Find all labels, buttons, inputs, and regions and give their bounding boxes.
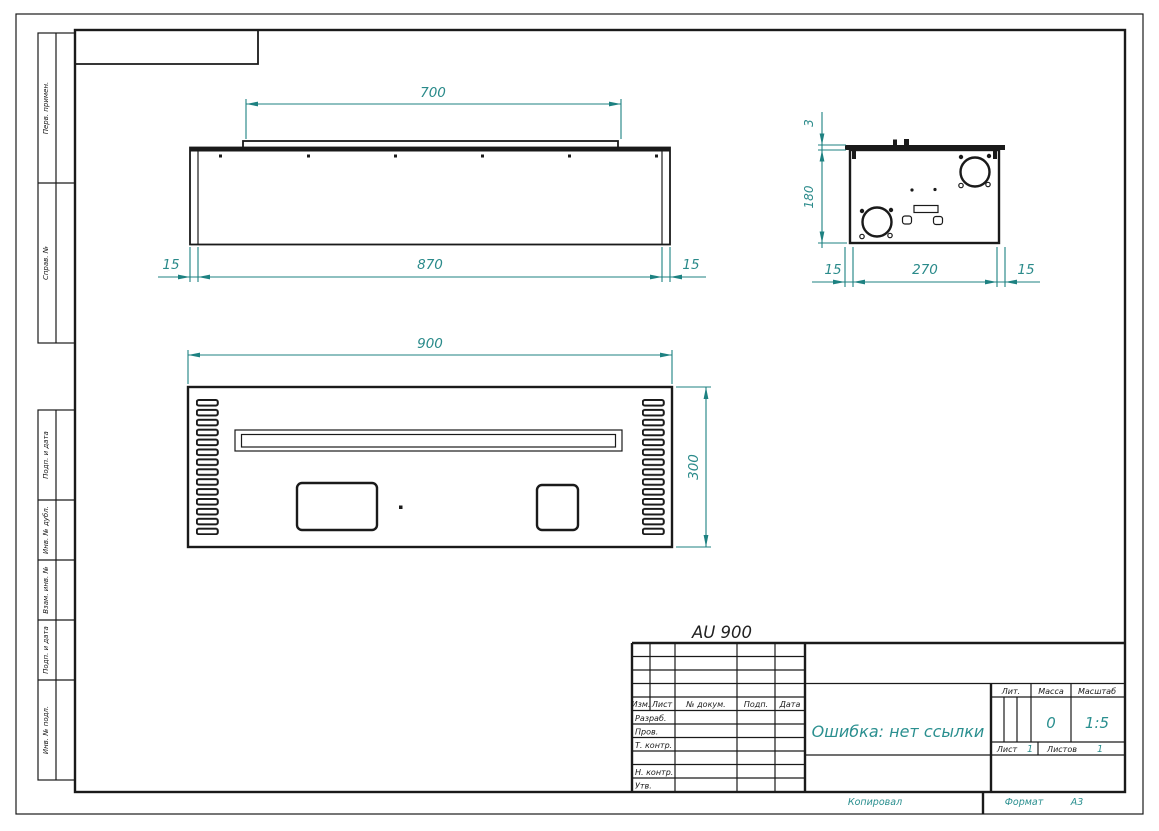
scale-label: Масштаб: [1078, 687, 1116, 696]
sheets-label: Листов: [1046, 745, 1077, 754]
side-body-outline: [850, 150, 999, 243]
arrowhead: [704, 535, 709, 547]
arrowhead: [820, 134, 825, 146]
fan-mount-hole: [959, 183, 963, 187]
dim-text-700: 700: [420, 85, 446, 101]
arrowhead: [660, 353, 672, 358]
drawing-page: Перв. примен. Справ. № Подп. и дата Инв.…: [0, 0, 1159, 831]
fan-mount-hole: [860, 234, 864, 238]
arrowhead: [650, 275, 662, 280]
col-podp: Подп.: [744, 700, 768, 709]
role-nkontr: Н. контр.: [635, 768, 673, 777]
arrowhead: [704, 387, 709, 399]
side-view: 3 180 15 270 15: [802, 112, 1040, 287]
arrowhead: [820, 232, 825, 244]
arrowhead: [246, 102, 258, 107]
fan-mount-hole: [986, 182, 990, 186]
format-value: А3: [1070, 797, 1084, 808]
dim-text-300: 300: [686, 454, 702, 480]
margin-label-inv-podl: Инв. № подл.: [42, 706, 50, 754]
screw-holes: [219, 155, 658, 158]
sheet-value: 1: [1027, 744, 1033, 755]
dimension-270: 15 270 15: [812, 247, 1040, 287]
margin-label-podp-data-2: Подп. и дата: [42, 626, 50, 674]
panel-outline: [188, 387, 672, 547]
mount-tab: [904, 139, 909, 145]
front-elevation-view: 700 15 870 15: [158, 85, 706, 282]
fan-mount-hole: [860, 209, 864, 213]
arrowhead: [820, 150, 825, 162]
dim-text-870: 870: [417, 257, 443, 273]
dimension-870: 15 870 15: [158, 247, 706, 282]
screw-hole: [568, 155, 571, 158]
title-block: Изм. Лист № докум. Подп. Дата Разраб. Пр…: [632, 643, 1125, 792]
center-hole: [399, 506, 403, 510]
col-izm: Изм.: [632, 700, 651, 709]
margin-label-perv-primen: Перв. примен.: [42, 82, 50, 135]
arrowhead: [985, 280, 997, 285]
document-name: Ошибка: нет ссылки: [812, 722, 985, 741]
arrowhead: [853, 280, 865, 285]
role-razrab: Разраб.: [635, 714, 666, 723]
format-label: Формат: [1005, 797, 1044, 808]
corner-notch: [993, 150, 997, 159]
arrowhead: [670, 275, 682, 280]
screw-hole: [655, 155, 658, 158]
margin-column: Перв. примен. Справ. № Подп. и дата Инв.…: [38, 33, 75, 780]
margin-label-inv-dubl: Инв. № дубл.: [42, 506, 50, 554]
footer-strip: Копировал Формат А3: [848, 792, 1083, 814]
dim-text-15-right: 15: [1017, 262, 1034, 278]
mass-value: 0: [1046, 714, 1056, 732]
copied-label: Копировал: [848, 797, 902, 808]
dim-text-270: 270: [912, 262, 938, 278]
fan-cutout-bottom: [863, 208, 892, 237]
corner-notch: [852, 150, 856, 159]
small-hole: [910, 188, 913, 191]
margin-label-podp-data-1: Подп. и дата: [42, 431, 50, 479]
drawing-canvas: Перв. примен. Справ. № Подп. и дата Инв.…: [0, 0, 1159, 831]
col-docnum: № докум.: [685, 700, 725, 709]
burner-slot-inner: [242, 435, 616, 448]
role-tkontr: Т. контр.: [635, 741, 672, 750]
mass-label: Масса: [1038, 687, 1064, 696]
fan-cutout-top: [961, 158, 990, 187]
outer-border: [16, 14, 1143, 814]
fan-mount-hole: [959, 155, 963, 159]
scale-value: 1:5: [1085, 714, 1109, 732]
screw-hole: [219, 155, 222, 158]
small-hole: [933, 188, 936, 191]
drawing-title: AU 900: [691, 623, 752, 642]
arrowhead: [609, 102, 621, 107]
mount-tab: [893, 140, 897, 146]
dimension-900: 900: [188, 336, 672, 384]
margin-label-vzam-inv: Взам. инв. №: [42, 566, 50, 614]
main-frame: [75, 30, 1125, 792]
arrowhead: [188, 353, 200, 358]
panel-view: 900 300: [188, 336, 711, 547]
connector-slot: [914, 206, 938, 213]
sheet-frame: [16, 14, 1143, 814]
dim-text-15-left: 15: [824, 262, 841, 278]
cutout-left: [297, 483, 377, 530]
cable-hole: [934, 217, 943, 225]
screw-hole: [481, 155, 484, 158]
col-list: Лист: [651, 700, 673, 709]
body-outline: [190, 148, 670, 245]
fan-mount-hole: [987, 154, 991, 158]
dimension-3-180: 3 180: [802, 112, 847, 248]
fan-mount-hole: [888, 233, 892, 237]
arrowhead: [1005, 280, 1017, 285]
margin-label-sprav-no: Справ. №: [42, 246, 50, 280]
cable-hole: [903, 216, 912, 224]
cutout-right: [537, 485, 578, 530]
screw-hole: [307, 155, 310, 158]
dim-text-180: 180: [802, 185, 816, 208]
arrowhead: [833, 280, 845, 285]
fan-mount-hole: [889, 208, 893, 212]
vent-slots-right: [642, 399, 665, 535]
top-left-stamp-box: [75, 30, 258, 64]
sheets-value: 1: [1097, 744, 1103, 755]
vent-slots-left: [196, 399, 219, 535]
dimension-700: 700: [246, 85, 621, 139]
sheet-label: Лист: [996, 745, 1018, 754]
dimension-300: 300: [676, 387, 711, 547]
col-data: Дата: [779, 700, 801, 709]
dim-text-15-left: 15: [162, 257, 179, 273]
lit-label: Лит.: [1001, 687, 1020, 696]
arrowhead: [178, 275, 190, 280]
role-prov: Пров.: [635, 728, 658, 737]
dim-text-900: 900: [417, 336, 443, 352]
burner-slot-outer: [235, 430, 622, 451]
dim-text-3: 3: [802, 119, 816, 127]
screw-hole: [394, 155, 397, 158]
role-utv: Утв.: [635, 782, 652, 791]
dim-text-15-right: 15: [682, 257, 699, 273]
arrowhead: [198, 275, 210, 280]
